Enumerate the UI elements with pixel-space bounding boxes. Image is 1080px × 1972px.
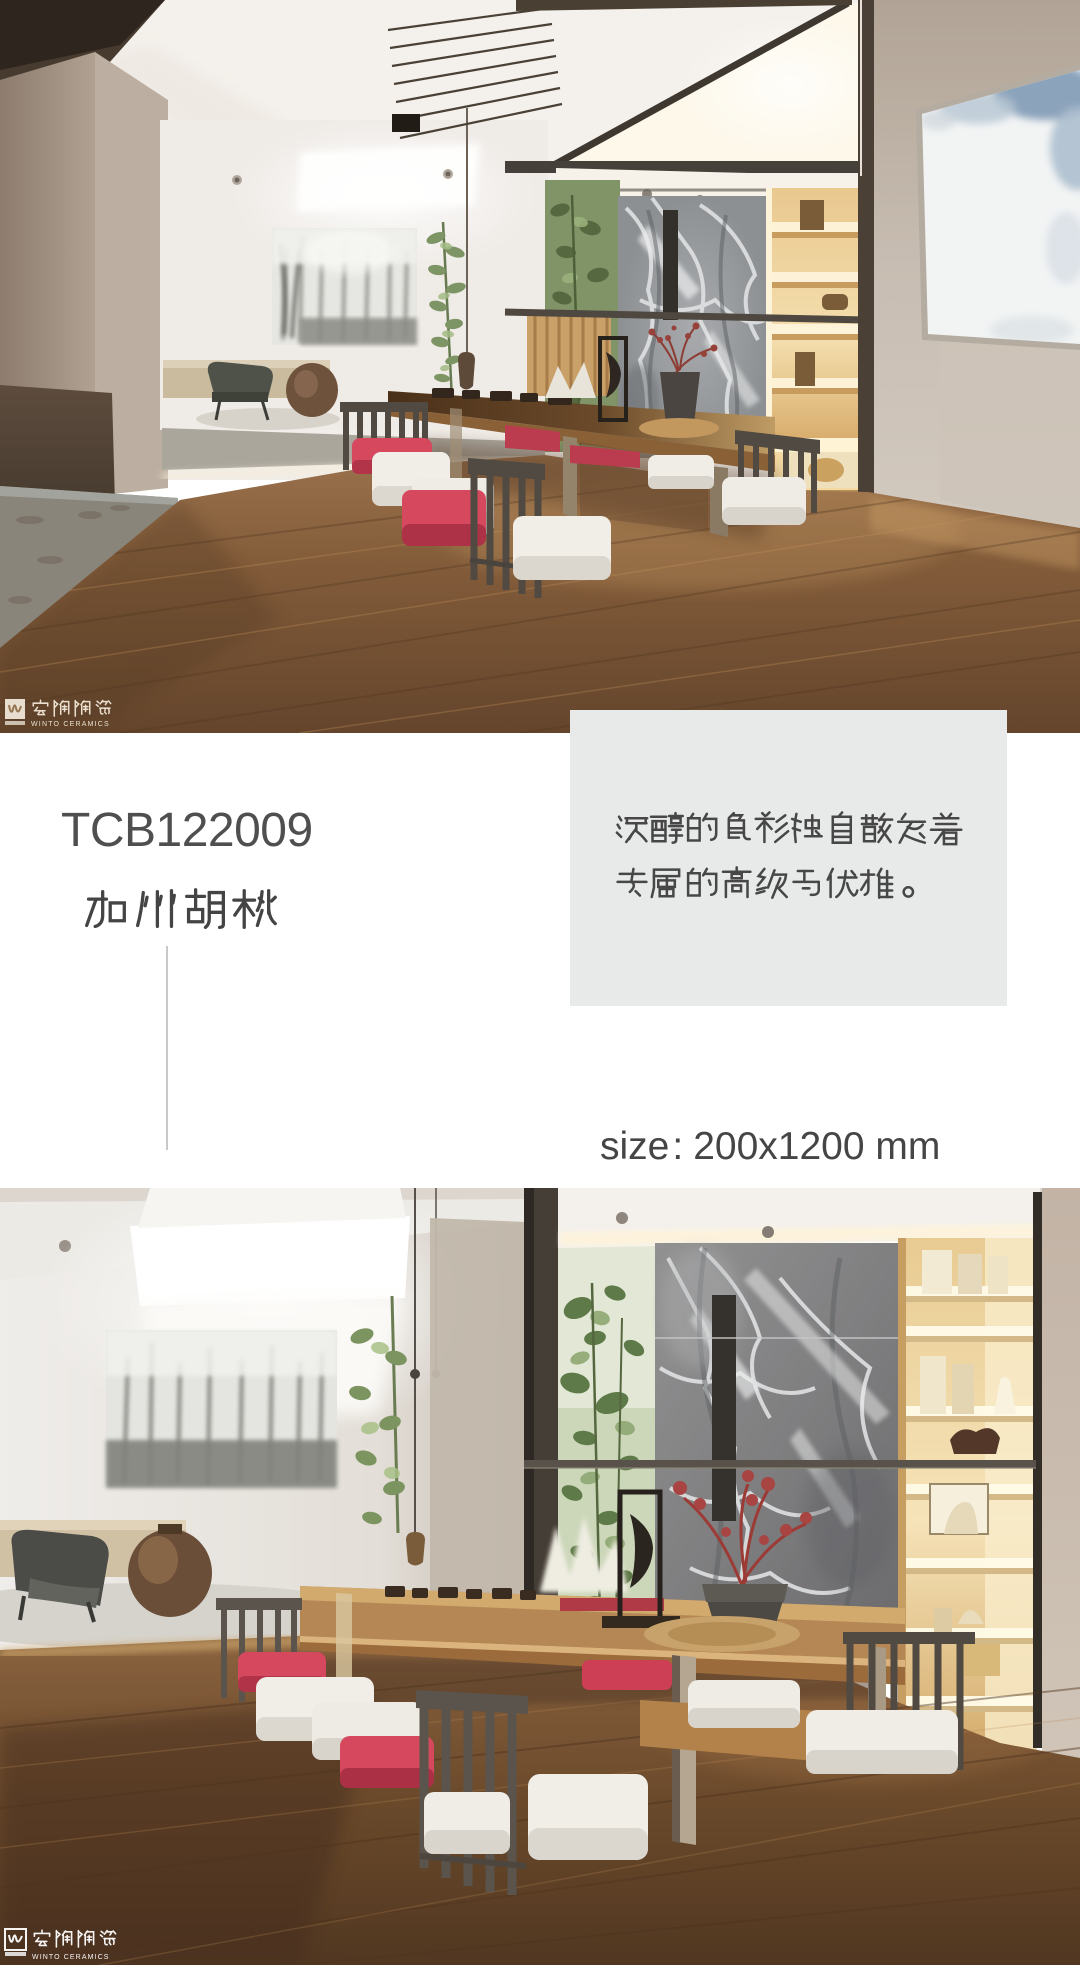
svg-text:WINTO CERAMICS: WINTO CERAMICS	[31, 721, 110, 728]
svg-text:WINTO CERAMICS: WINTO CERAMICS	[32, 1954, 110, 1961]
